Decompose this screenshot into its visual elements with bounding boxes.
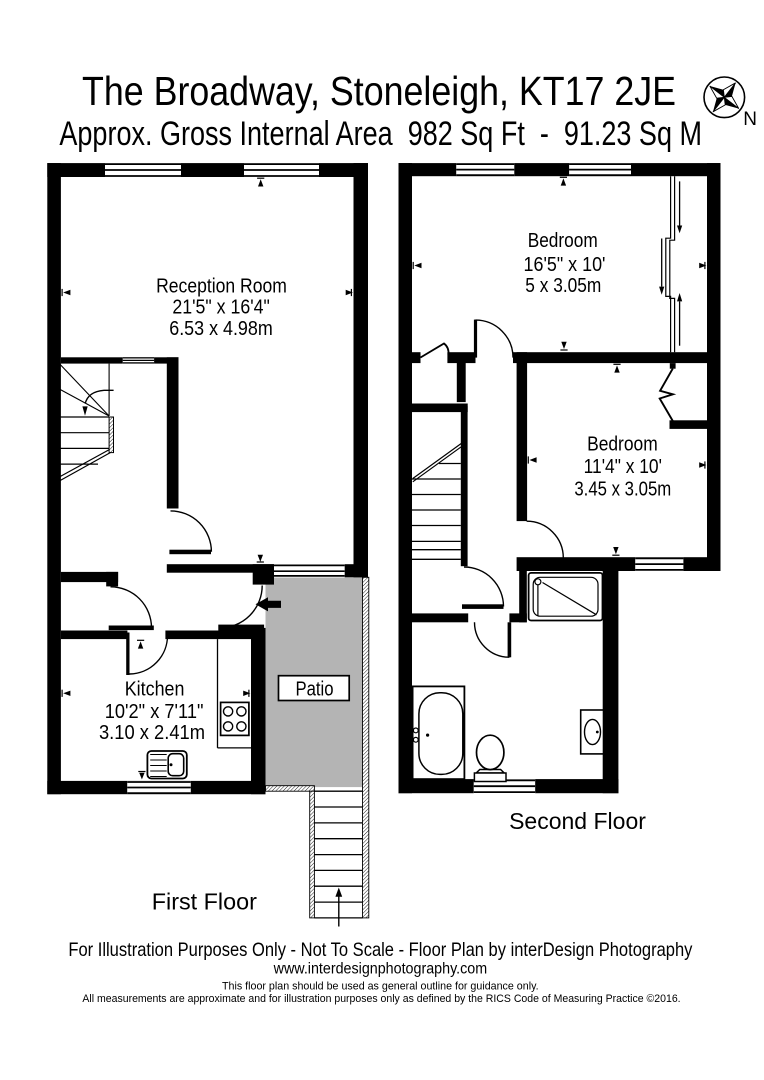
- svg-text:This floor plan should be used: This floor plan should be used as genera…: [222, 981, 539, 993]
- svg-text:First Floor: First Floor: [152, 889, 257, 915]
- svg-text:For Illustration Purposes Only: For Illustration Purposes Only - Not To …: [68, 939, 692, 961]
- svg-text:16'5" x 10': 16'5" x 10': [524, 254, 606, 276]
- svg-text:Approx. Gross Internal Area 9: Approx. Gross Internal Area 982 Sq Ft - …: [59, 115, 702, 153]
- svg-text:11'4" x 10': 11'4" x 10': [584, 456, 662, 478]
- svg-text:Reception Room: Reception Room: [156, 275, 287, 297]
- svg-text:www.interdesignphotography.com: www.interdesignphotography.com: [273, 961, 487, 978]
- svg-text:3.10 x 2.41m: 3.10 x 2.41m: [99, 722, 205, 744]
- svg-text:Kitchen: Kitchen: [125, 678, 185, 700]
- svg-text:6.53 x 4.98m: 6.53 x 4.98m: [169, 318, 273, 340]
- svg-text:N: N: [743, 109, 757, 130]
- svg-text:Bedroom: Bedroom: [528, 230, 598, 252]
- svg-text:21'5" x 16'4": 21'5" x 16'4": [172, 297, 269, 319]
- svg-text:The Broadway, Stoneleigh, KT17: The Broadway, Stoneleigh, KT17 2JE: [82, 68, 676, 114]
- svg-text:Bedroom: Bedroom: [587, 433, 658, 455]
- svg-text:10'2" x 7'11": 10'2" x 7'11": [105, 701, 204, 723]
- svg-text:3.45 x 3.05m: 3.45 x 3.05m: [574, 478, 671, 500]
- svg-text:All measurements are approxima: All measurements are approximate and for…: [82, 993, 680, 1005]
- svg-text:Second Floor: Second Floor: [509, 808, 646, 834]
- svg-text:5 x 3.05m: 5 x 3.05m: [525, 275, 601, 297]
- svg-text:Patio: Patio: [296, 678, 334, 700]
